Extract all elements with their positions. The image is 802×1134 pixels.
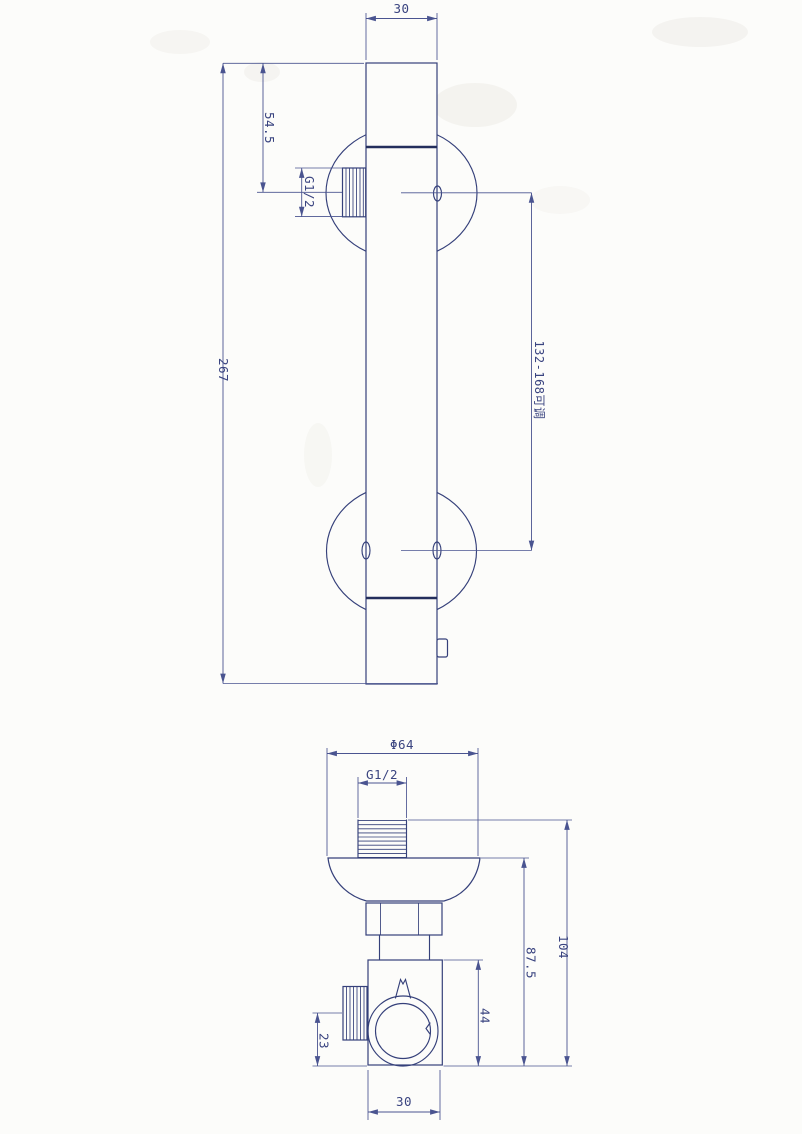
flange-bowl <box>328 858 480 901</box>
dim-bottom-thread: G1/2 <box>358 767 407 818</box>
dim-height-body: 87.5 <box>481 858 539 1066</box>
wall-thread <box>343 168 366 217</box>
dim-adjust-range: 132-168可调 <box>532 193 547 551</box>
side-thread <box>343 987 367 1041</box>
dim-block-width: 30 <box>368 1070 440 1120</box>
dim-label-bottom-thread: G1/2 <box>366 767 398 782</box>
dim-label-block-width: 30 <box>396 1094 412 1109</box>
top-thread <box>358 820 407 858</box>
dim-top-width: 30 <box>366 1 437 60</box>
dim-label-side-offset: 23 <box>317 1033 332 1049</box>
dim-label-flange-diameter: Φ64 <box>390 737 414 752</box>
bottom-view-bracket: Φ64 G1/2 104 87.5 44 <box>313 737 573 1120</box>
holder-block <box>368 960 442 1065</box>
dim-height-block: 44 <box>444 960 573 1066</box>
dim-label-total-height: 267 <box>216 358 231 382</box>
holder-knob <box>437 639 448 657</box>
dim-label-top-width: 30 <box>393 1 409 16</box>
lock-nut <box>366 903 442 935</box>
dim-flange-diameter: Φ64 <box>327 737 478 856</box>
scan-artifacts <box>150 17 748 487</box>
dim-label-cap-offset: 54.5 <box>262 112 277 144</box>
dim-label-adjust-range: 132-168可调 <box>532 340 546 419</box>
blueprint-page: 30 54.5 G1/2 267 132-168可调 <box>0 0 802 1134</box>
dim-label-wall-thread: G1/2 <box>302 176 317 208</box>
dim-label-height-body: 87.5 <box>524 947 539 979</box>
slide-bar-body <box>366 63 437 684</box>
dim-label-height-total: 104 <box>556 935 571 959</box>
technical-drawing: 30 54.5 G1/2 267 132-168可调 <box>0 0 802 1134</box>
neck <box>380 935 430 960</box>
dim-label-height-block: 44 <box>478 1008 493 1024</box>
